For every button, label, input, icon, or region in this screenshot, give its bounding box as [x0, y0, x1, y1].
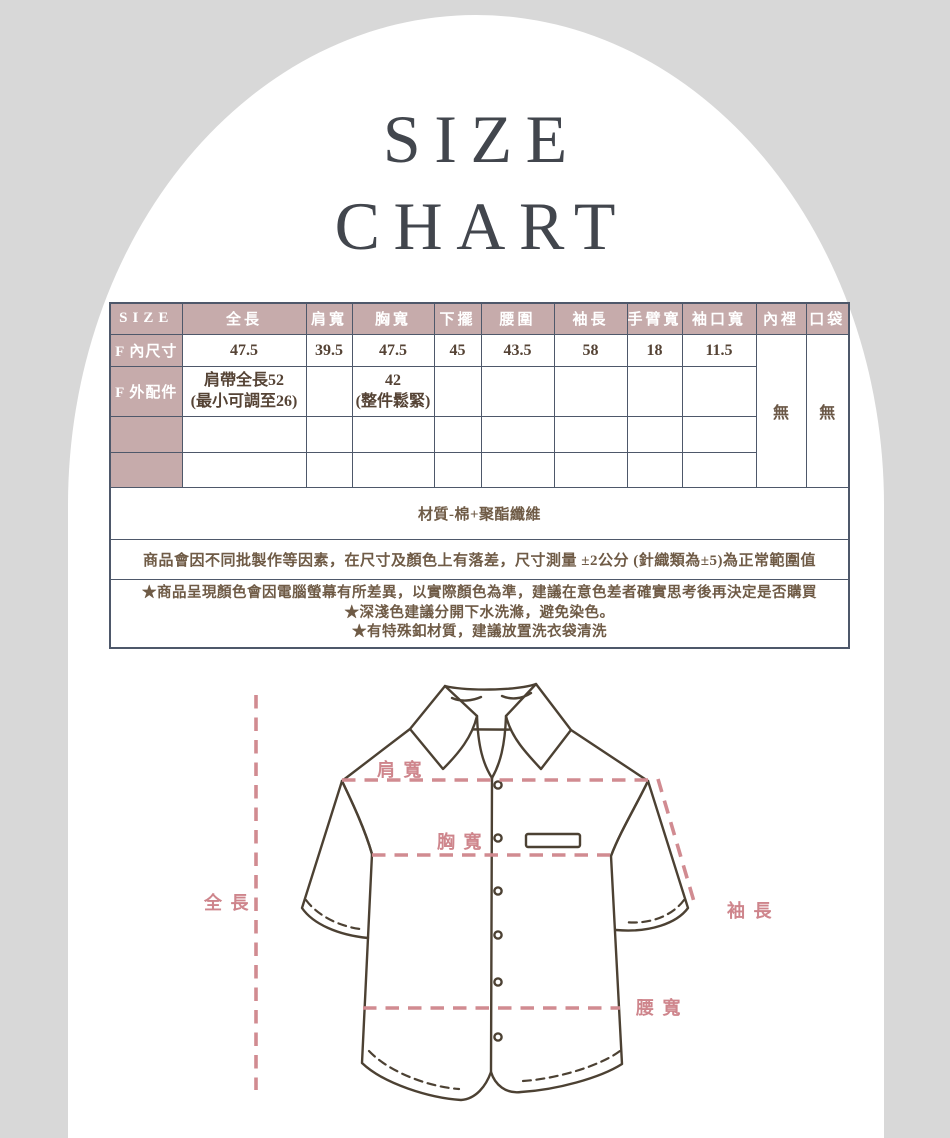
value-waist: 43.5: [481, 334, 554, 366]
value-sleeve-length: 58: [554, 334, 627, 366]
table-row-outer-accessory: F 外配件 肩帶全長52 (最小可調至26) 42 (整件鬆緊): [110, 366, 849, 416]
header-sleeve-length: 袖長: [554, 303, 627, 334]
empty-cell: [481, 452, 554, 487]
empty-cell: [627, 416, 682, 452]
waist-width-label: 腰 寬: [635, 997, 683, 1018]
left-cuff-stitch: [306, 900, 360, 929]
value-elastic-chest: 42 (整件鬆緊): [352, 366, 434, 416]
table-row-material: 材質-棉+聚酯纖維: [110, 487, 849, 539]
care-notes: ★商品呈現顏色會因電腦螢幕有所差異，以實際顏色為準，建議在意色差者確實思考後再決…: [110, 579, 849, 648]
empty-row-label: [110, 452, 182, 487]
empty-cell: [434, 452, 481, 487]
value-strap-length: 肩帶全長52 (最小可調至26): [182, 366, 306, 416]
empty-cell: [682, 452, 756, 487]
value-shoulder-width: 39.5: [306, 334, 352, 366]
value-arm-width: 18: [627, 334, 682, 366]
size-chart-table: SIZE 全長 肩寬 胸寬 下擺 腰圍 袖長 手臂寬 袖口寬 內裡 口袋 F 內…: [109, 302, 850, 649]
value-hem: 45: [434, 334, 481, 366]
table-row-inner-size: F 內尺寸 47.5 39.5 47.5 45 43.5 58 18 11.5 …: [110, 334, 849, 366]
page-title-line1: SIZE: [0, 96, 950, 183]
header-chest-width: 胸寬: [352, 303, 434, 334]
table-row-tolerance: 商品會因不同批製作等因素，在尺寸及顏色上有落差，尺寸測量 ±2公分 (針織類為±…: [110, 539, 849, 579]
tolerance-note: 商品會因不同批製作等因素，在尺寸及顏色上有落差，尺寸測量 ±2公分 (針織類為±…: [110, 539, 849, 579]
material-note: 材質-棉+聚酯纖維: [110, 487, 849, 539]
button-icon: [494, 887, 501, 894]
button-icon: [494, 978, 501, 985]
page-title: SIZE CHART: [0, 96, 950, 270]
shoulder-width-label: 肩 寬: [377, 759, 424, 780]
table-row-empty-2: [110, 452, 849, 487]
empty-cell: [434, 366, 481, 416]
care-note-color: ★商品呈現顏色會因電腦螢幕有所差異，以實際顏色為準，建議在意色差者確實思考後再決…: [111, 584, 848, 604]
empty-cell: [627, 452, 682, 487]
value-total-length: 47.5: [182, 334, 306, 366]
empty-cell: [627, 366, 682, 416]
empty-row-label: [110, 416, 182, 452]
header-hem: 下擺: [434, 303, 481, 334]
header-cuff-width: 袖口寬: [682, 303, 756, 334]
empty-cell: [481, 416, 554, 452]
empty-cell: [306, 416, 352, 452]
button-icon: [494, 931, 501, 938]
button-icon: [494, 1033, 501, 1040]
empty-cell: [306, 366, 352, 416]
header-waist: 腰圍: [481, 303, 554, 334]
size-chart-page: { "title": { "line1": "SIZE", "line2": "…: [0, 0, 950, 1138]
value-chest-width: 47.5: [352, 334, 434, 366]
total-length-label: 全 長: [203, 892, 251, 913]
sleeve-length-label: 袖 長: [727, 900, 774, 921]
page-title-line2: CHART: [0, 183, 950, 270]
row-label-inner: F 內尺寸: [110, 334, 182, 366]
header-shoulder-width: 肩寬: [306, 303, 352, 334]
sleeve-length-line: [658, 779, 695, 905]
header-total-length: 全長: [182, 303, 306, 334]
table-row-empty-1: [110, 416, 849, 452]
value-lining: 無: [756, 334, 806, 487]
empty-cell: [554, 366, 627, 416]
empty-cell: [554, 416, 627, 452]
empty-cell: [682, 366, 756, 416]
row-label-outer: F 外配件: [110, 366, 182, 416]
empty-cell: [352, 416, 434, 452]
empty-cell: [182, 452, 306, 487]
care-note-buttons: ★有特殊釦材質，建議放置洗衣袋清洗: [111, 623, 848, 643]
empty-cell: [434, 416, 481, 452]
button-placket: [491, 778, 492, 1072]
table-row-care-notes: ★商品呈現顏色會因電腦螢幕有所差異，以實際顏色為準，建議在意色差者確實思考後再決…: [110, 579, 849, 648]
empty-cell: [306, 452, 352, 487]
empty-cell: [352, 452, 434, 487]
header-lining: 內裡: [756, 303, 806, 334]
empty-cell: [182, 416, 306, 452]
header-size: SIZE: [110, 303, 182, 334]
empty-cell: [554, 452, 627, 487]
header-arm-width: 手臂寬: [627, 303, 682, 334]
empty-cell: [682, 416, 756, 452]
collar-top-edge: [445, 684, 536, 690]
button-icon: [494, 834, 501, 841]
value-cuff-width: 11.5: [682, 334, 756, 366]
header-pocket: 口袋: [806, 303, 849, 334]
value-pocket: 無: [806, 334, 849, 487]
table-header-row: SIZE 全長 肩寬 胸寬 下擺 腰圍 袖長 手臂寬 袖口寬 內裡 口袋: [110, 303, 849, 334]
button-icon: [494, 781, 501, 788]
empty-cell: [481, 366, 554, 416]
shirt-measurement-diagram: 肩 寬 胸 寬 全 長 袖 長 腰 寬: [195, 668, 800, 1130]
chest-width-label: 胸 寬: [437, 831, 484, 852]
care-note-wash: ★深淺色建議分開下水洗滌，避免染色。: [111, 604, 848, 624]
chest-pocket: [526, 834, 580, 847]
